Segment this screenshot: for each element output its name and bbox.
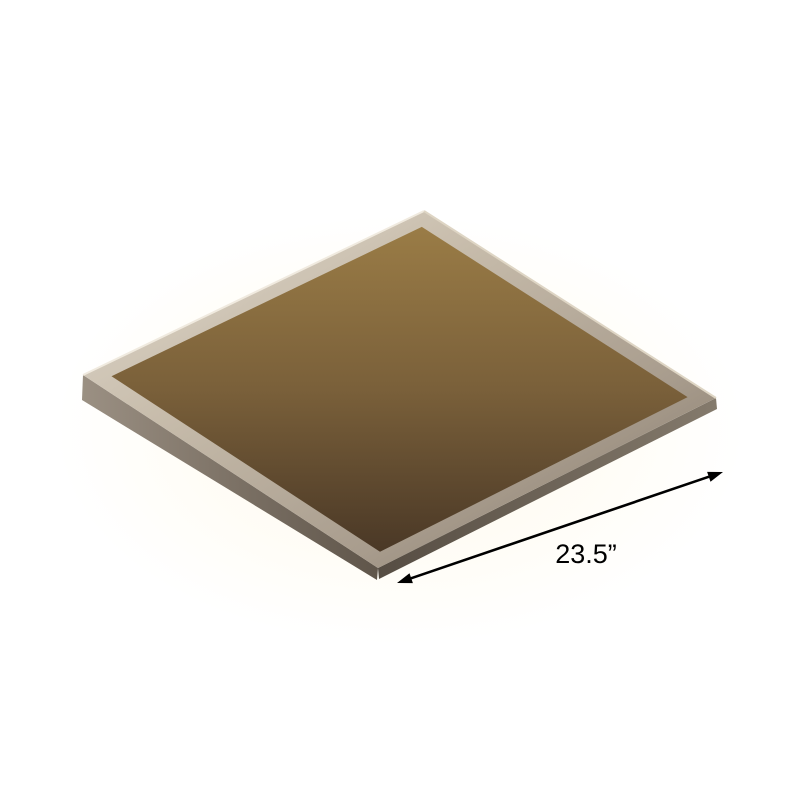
fixture-illustration: 23.5” [0, 0, 800, 800]
product-photo: 23.5” [0, 0, 800, 800]
dimension-label: 23.5” [555, 539, 617, 569]
